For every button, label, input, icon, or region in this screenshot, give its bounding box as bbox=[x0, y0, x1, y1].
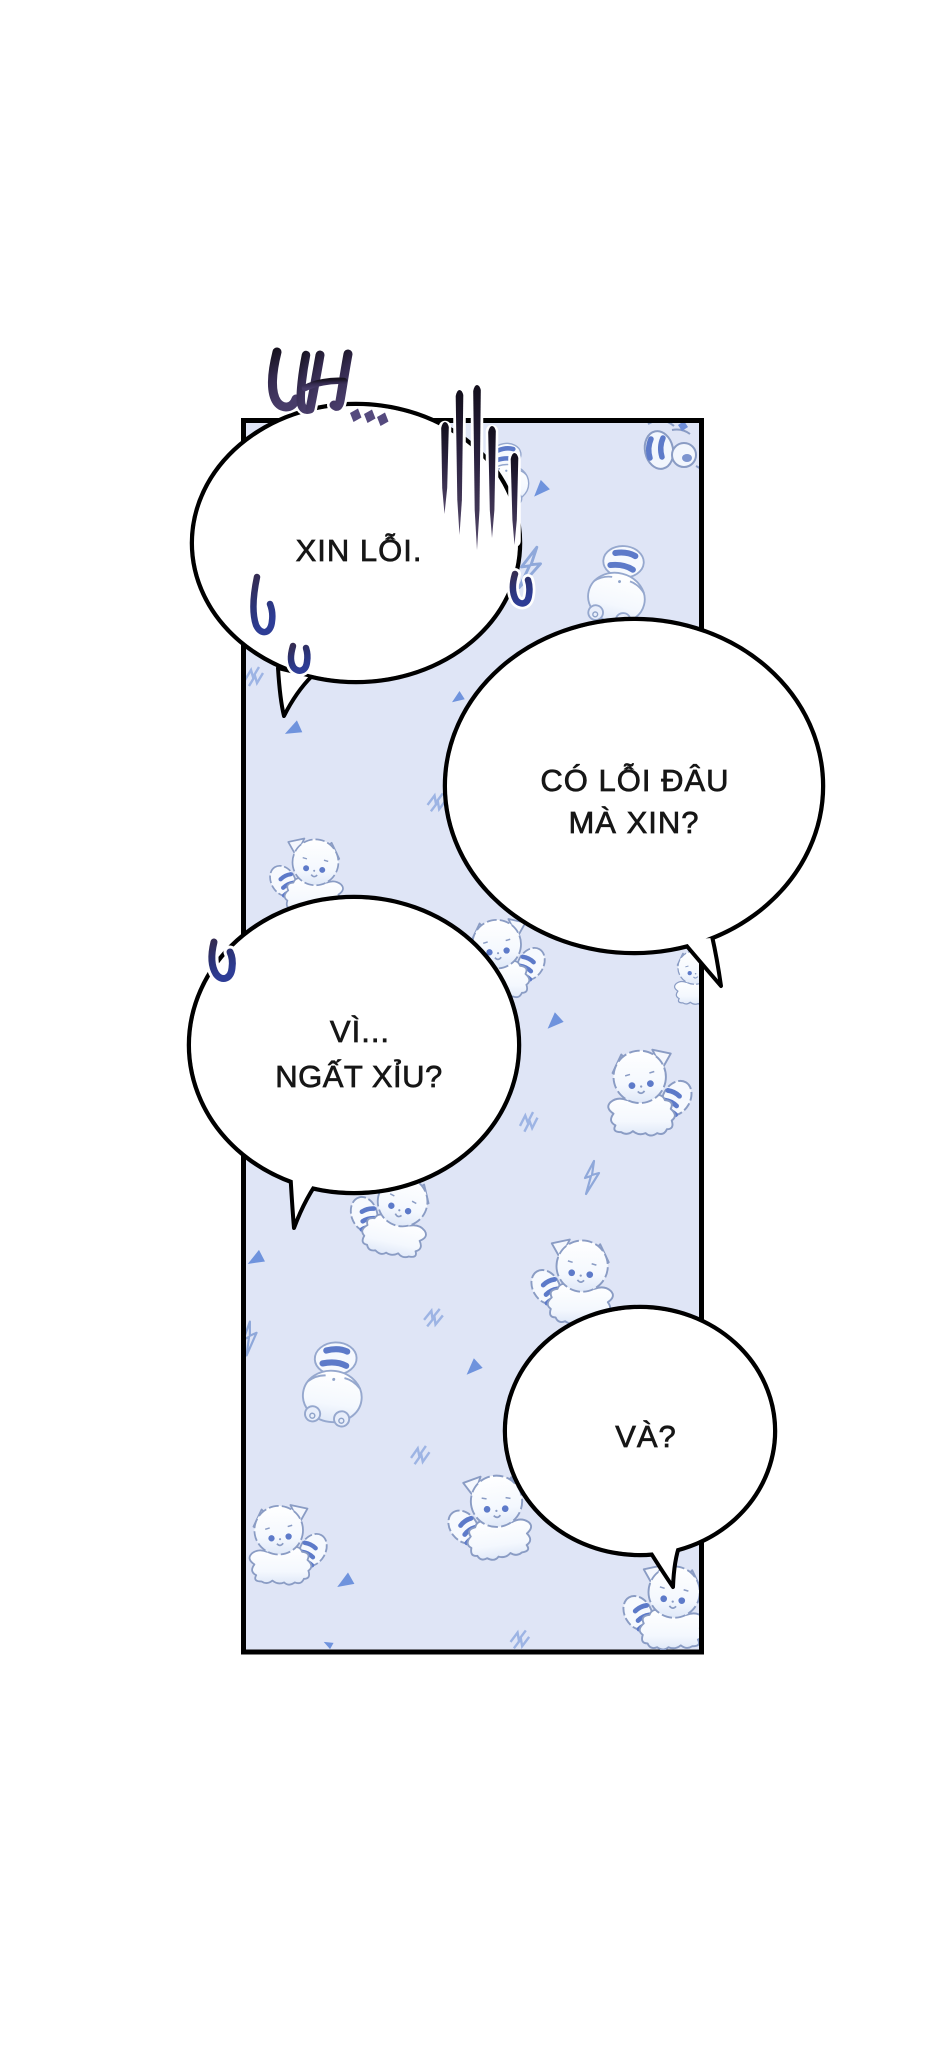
svg-text:VÌ...: VÌ... bbox=[330, 1014, 390, 1049]
svg-text:XIN LỖI.: XIN LỖI. bbox=[296, 532, 423, 568]
svg-text:VÀ?: VÀ? bbox=[615, 1419, 677, 1454]
svg-text:CÓ LỖI ĐÂU: CÓ LỖI ĐÂU bbox=[540, 762, 729, 798]
svg-text:NGẤT XỈU?: NGẤT XỈU? bbox=[275, 1059, 443, 1094]
svg-text:MÀ XIN?: MÀ XIN? bbox=[568, 805, 699, 840]
